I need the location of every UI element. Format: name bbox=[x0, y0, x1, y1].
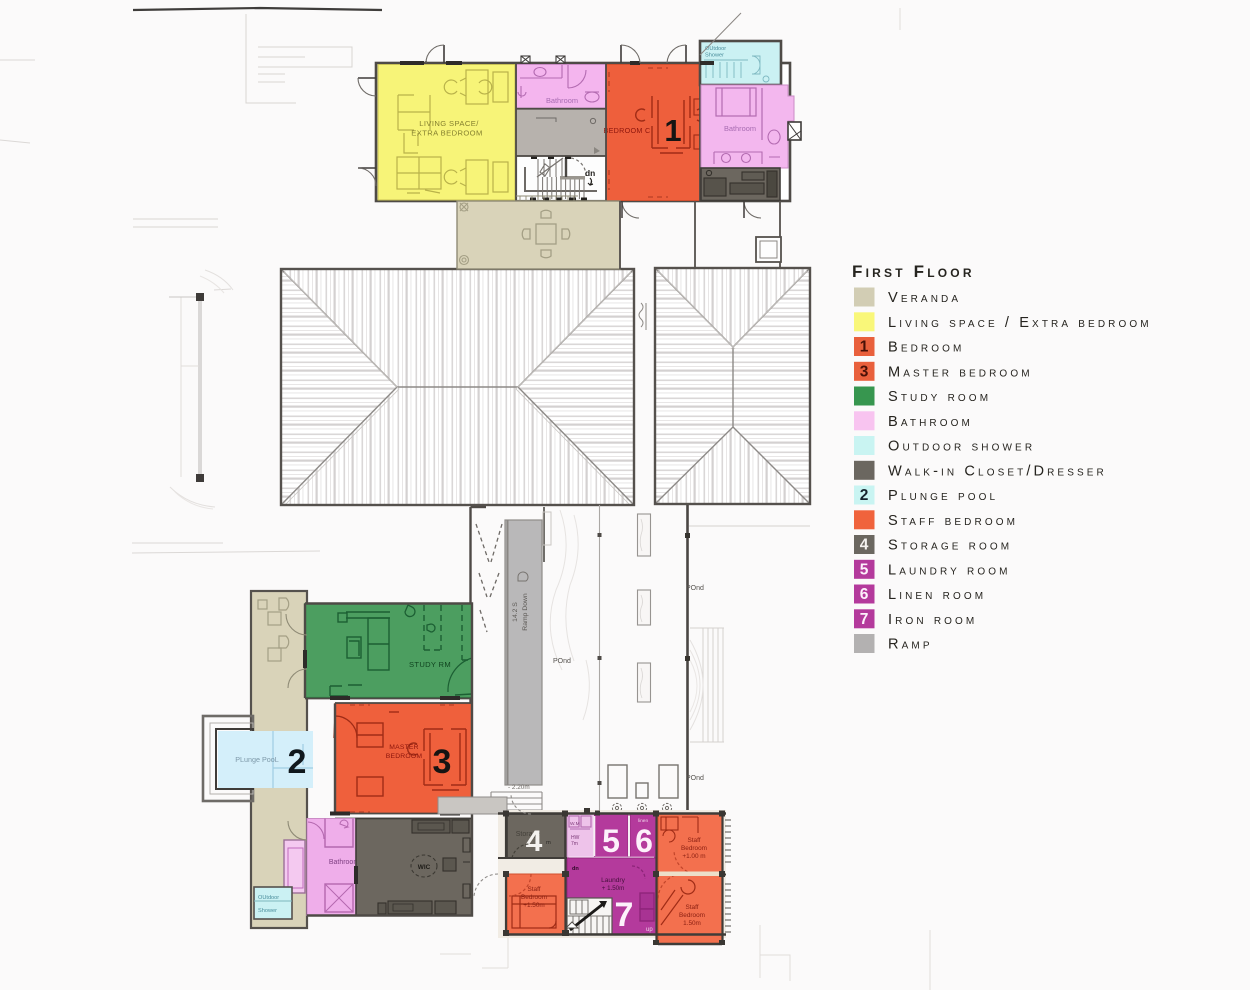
svg-text:Bedroom: Bedroom bbox=[679, 912, 705, 919]
svg-text:6: 6 bbox=[635, 823, 653, 859]
svg-text:6: 6 bbox=[860, 586, 869, 603]
svg-text:POnd: POnd bbox=[686, 585, 704, 592]
svg-text:2: 2 bbox=[860, 487, 869, 504]
svg-text:OUtdoor: OUtdoor bbox=[258, 895, 279, 901]
svg-text:1.50m: 1.50m bbox=[683, 920, 701, 927]
svg-text:WIC: WIC bbox=[418, 864, 431, 871]
svg-text:Outdoor shower: Outdoor shower bbox=[888, 439, 1035, 455]
svg-text:+1.50m: +1.50m bbox=[523, 902, 545, 909]
svg-text:m: m bbox=[546, 840, 551, 846]
svg-text:+ 1.50m: + 1.50m bbox=[602, 885, 625, 892]
svg-text:First Floor: First Floor bbox=[852, 262, 975, 281]
svg-text:- 2.20m: - 2.20m bbox=[508, 784, 530, 791]
svg-text:Staff: Staff bbox=[685, 904, 698, 911]
svg-text:Bathroom: Bathroom bbox=[546, 96, 578, 105]
svg-text:Master bedroom: Master bedroom bbox=[888, 364, 1033, 380]
svg-text:Bedroom: Bedroom bbox=[681, 845, 707, 852]
svg-text:Bathroom: Bathroom bbox=[724, 124, 756, 133]
svg-text:up: up bbox=[646, 927, 653, 933]
svg-text:dn: dn bbox=[572, 866, 579, 872]
svg-text:MASTER: MASTER bbox=[389, 744, 419, 751]
svg-text:Staff: Staff bbox=[527, 886, 540, 893]
svg-text:BEDROOM: BEDROOM bbox=[386, 753, 423, 760]
svg-text:1: 1 bbox=[664, 113, 681, 148]
svg-text:PLunge PooL: PLunge PooL bbox=[235, 755, 279, 764]
svg-text:LIVING SPACE/: LIVING SPACE/ bbox=[419, 119, 479, 128]
svg-text:4: 4 bbox=[526, 825, 543, 858]
svg-text:linen: linen bbox=[638, 818, 648, 824]
svg-text:Storage room: Storage room bbox=[888, 538, 1012, 554]
svg-text:7: 7 bbox=[615, 896, 634, 934]
svg-text:POnd: POnd bbox=[553, 658, 571, 665]
svg-text:1: 1 bbox=[860, 339, 869, 356]
svg-text:7: 7 bbox=[860, 611, 869, 628]
svg-text:Living space / Extra bedroom: Living space / Extra bedroom bbox=[888, 315, 1152, 331]
svg-text:Bathroom: Bathroom bbox=[888, 414, 973, 430]
svg-text:POnd: POnd bbox=[686, 775, 704, 782]
svg-text:7m: 7m bbox=[571, 841, 578, 847]
svg-text:3: 3 bbox=[433, 743, 452, 781]
svg-text:2: 2 bbox=[288, 743, 307, 781]
svg-text:Staff bedroom: Staff bedroom bbox=[888, 513, 1018, 529]
svg-text:Bathroom: Bathroom bbox=[329, 859, 360, 866]
svg-text:14.2 S: 14.2 S bbox=[512, 602, 519, 622]
svg-text:5: 5 bbox=[602, 823, 620, 859]
svg-text:Shower: Shower bbox=[705, 53, 724, 59]
svg-text:Iron room: Iron room bbox=[888, 612, 977, 628]
svg-text:dn: dn bbox=[585, 168, 595, 178]
svg-text:Walk-in Closet/Dresser: Walk-in Closet/Dresser bbox=[888, 463, 1107, 479]
svg-text:Shower: Shower bbox=[258, 908, 277, 914]
svg-text:W.M: W.M bbox=[570, 821, 580, 827]
svg-text:Veranda: Veranda bbox=[888, 290, 961, 306]
svg-text:Ramp Down: Ramp Down bbox=[522, 593, 529, 631]
svg-text:STUDY RM: STUDY RM bbox=[409, 660, 451, 669]
svg-text:+1.00 m: +1.00 m bbox=[682, 853, 705, 860]
svg-text:5: 5 bbox=[860, 561, 869, 578]
svg-text:Laundry: Laundry bbox=[601, 877, 626, 884]
svg-text:Ramp: Ramp bbox=[888, 637, 933, 653]
svg-text:Bedroom: Bedroom bbox=[888, 340, 964, 356]
svg-text:Study room: Study room bbox=[888, 389, 991, 405]
svg-text:Bedroom: Bedroom bbox=[521, 894, 547, 901]
svg-text:4: 4 bbox=[860, 537, 869, 554]
svg-text:BEDROOM C: BEDROOM C bbox=[603, 126, 650, 135]
svg-text:EXTRA BEDROOM: EXTRA BEDROOM bbox=[411, 129, 482, 138]
svg-text:3: 3 bbox=[860, 363, 869, 380]
svg-text:Plunge pool: Plunge pool bbox=[888, 488, 998, 504]
svg-text:Staff: Staff bbox=[687, 837, 700, 844]
svg-text:Linen room: Linen room bbox=[888, 587, 986, 603]
svg-text:Laundry room: Laundry room bbox=[888, 562, 1011, 578]
